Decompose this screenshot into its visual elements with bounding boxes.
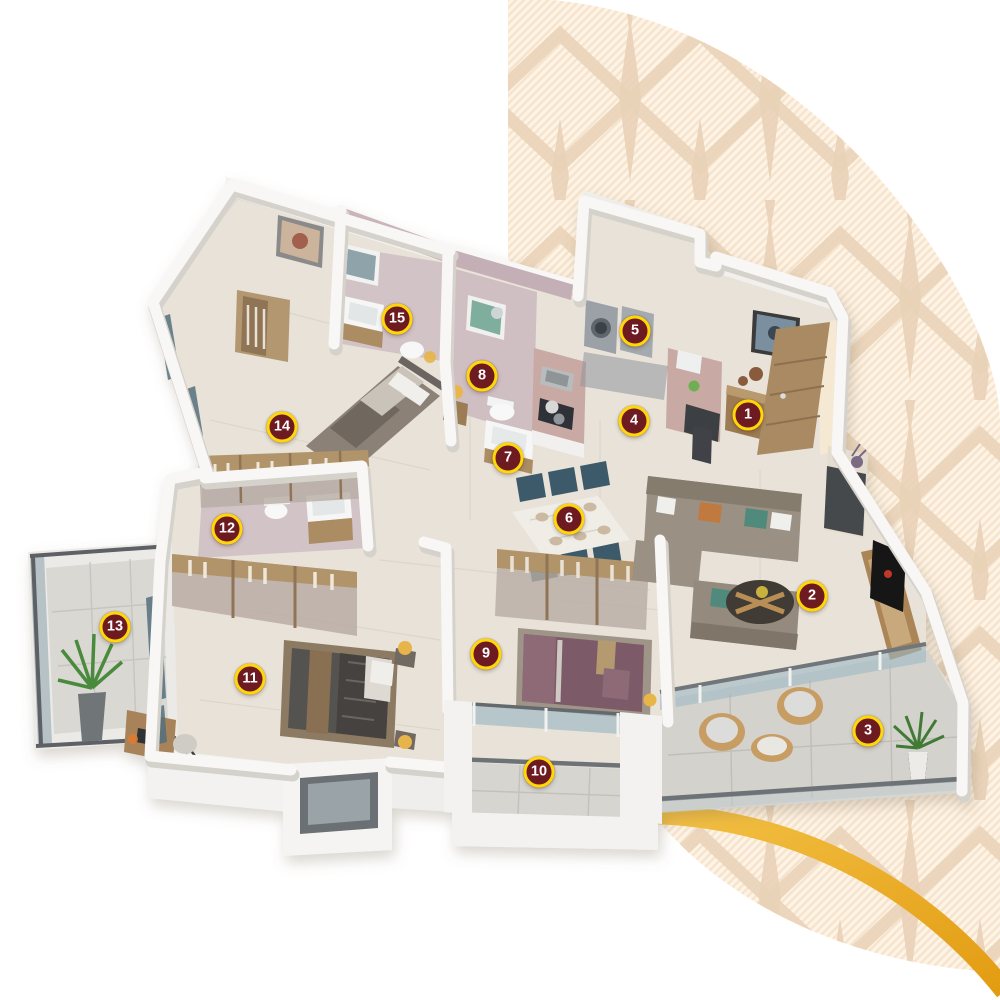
marker-15[interactable]: 15 [382,304,413,335]
floor-plan-page: 123456789101112131415 [0,0,1000,1000]
marker-13[interactable]: 13 [100,612,131,643]
marker-9[interactable]: 9 [471,639,502,670]
marker-layer: 123456789101112131415 [0,0,1000,1000]
marker-8[interactable]: 8 [467,361,498,392]
marker-4[interactable]: 4 [619,406,650,437]
marker-14[interactable]: 14 [267,412,298,443]
marker-3[interactable]: 3 [853,716,884,747]
marker-6[interactable]: 6 [554,504,585,535]
marker-2[interactable]: 2 [797,581,828,612]
marker-5[interactable]: 5 [620,316,651,347]
marker-7[interactable]: 7 [493,443,524,474]
marker-12[interactable]: 12 [212,514,243,545]
marker-1[interactable]: 1 [733,400,764,431]
marker-11[interactable]: 11 [235,664,266,695]
marker-10[interactable]: 10 [524,757,555,788]
